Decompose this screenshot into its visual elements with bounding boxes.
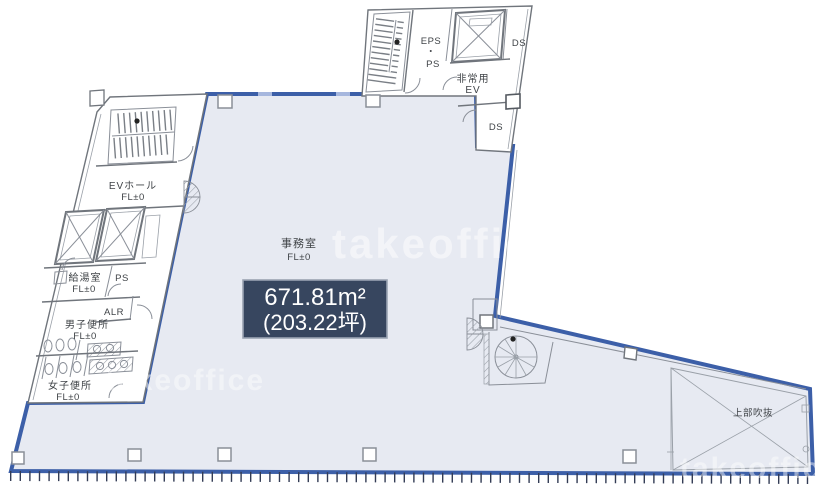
column-marker: [366, 95, 380, 107]
watermark-text: takeoffice: [680, 452, 826, 485]
column-marker: [12, 452, 24, 464]
column-marker: [480, 315, 493, 328]
label-ev-hall: EVホール: [109, 180, 157, 192]
label-office: 事務室: [281, 236, 317, 250]
column-marker: [128, 449, 141, 461]
emergency-elevator-shaft-icon: [452, 10, 505, 62]
floor-plan: takeoffice takeoffice takeoffice 671.81m…: [0, 0, 826, 491]
column-marker: [623, 450, 636, 463]
label-kitchenette: 給湯室: [69, 271, 102, 284]
watermark-text: takeoffice: [332, 220, 558, 267]
label-ds-mid: DS: [489, 122, 503, 133]
area-tsubo: (203.22坪): [263, 310, 367, 335]
label-emergency-ev-2: EV: [465, 85, 480, 96]
column-marker: [218, 448, 231, 461]
facade-notch: [90, 90, 104, 106]
label-ps-top: PS: [426, 59, 440, 70]
area-badge: 671.81m² (203.22坪): [243, 280, 387, 338]
label-ds-top: DS: [512, 38, 526, 49]
floor-plan-canvas: takeoffice takeoffice takeoffice 671.81m…: [0, 0, 826, 491]
area-sqm: 671.81m²: [264, 284, 365, 311]
label-ev-hall-fl: FL±0: [121, 192, 145, 203]
label-womens-fl: FL±0: [56, 392, 80, 403]
label-eps-dot: ・: [426, 47, 436, 58]
label-ps-side: PS: [115, 273, 129, 284]
column-marker: [624, 347, 637, 360]
column-marker: [363, 448, 376, 461]
column-marker: [218, 95, 232, 108]
label-eps: EPS: [421, 36, 442, 47]
label-emergency-ev-1: 非常用: [457, 72, 490, 85]
label-mens-fl: FL±0: [73, 331, 97, 342]
label-womens: 女子便所: [48, 379, 92, 392]
label-alr: ALR: [104, 307, 124, 318]
label-kitchenette-fl: FL±0: [72, 284, 96, 295]
boundary-box: [506, 94, 520, 109]
label-office-fl: FL±0: [287, 252, 311, 263]
watermark-text: takeoffice: [105, 364, 265, 397]
label-mens: 男子便所: [65, 318, 109, 331]
label-void: 上部吹抜: [733, 407, 773, 419]
